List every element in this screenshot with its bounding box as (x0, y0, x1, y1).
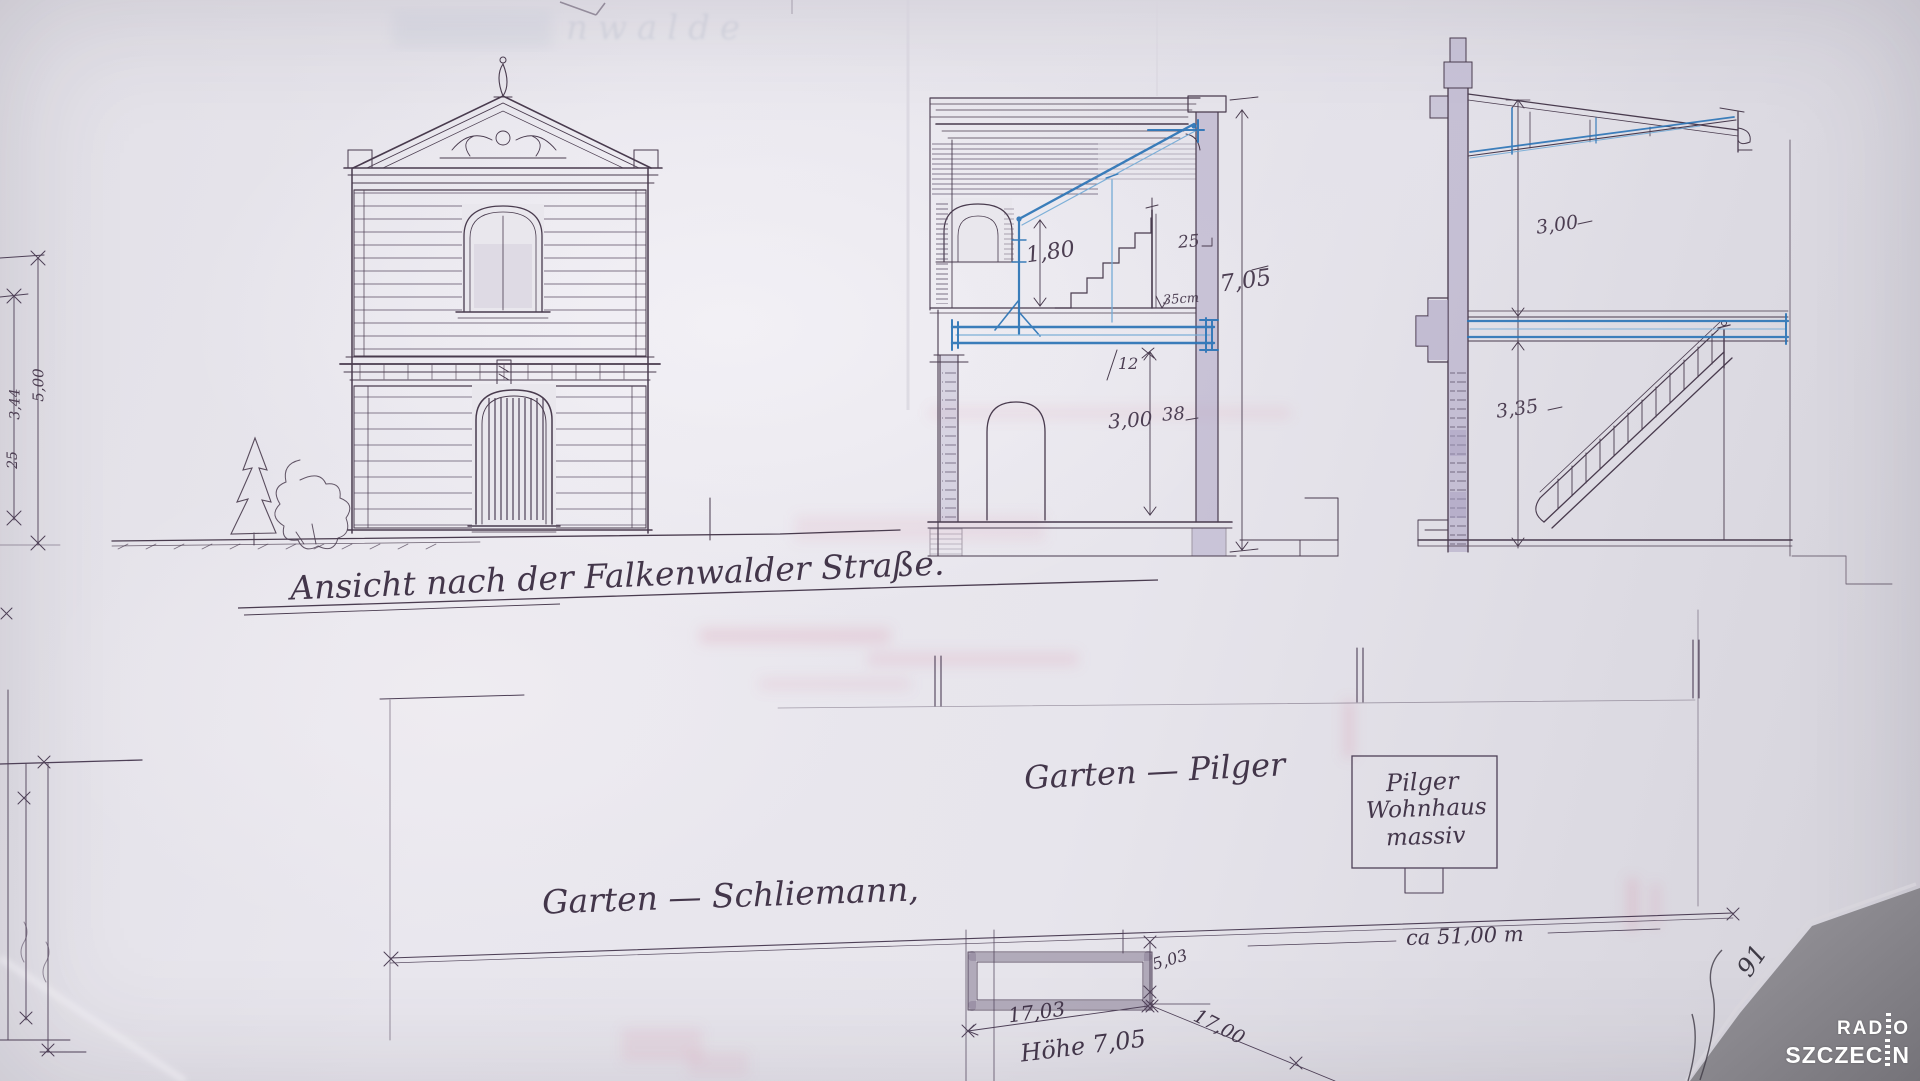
dim-left-margin-c: 25 (5, 451, 21, 469)
label-boundary-length: ca 51,00 m (1406, 922, 1524, 950)
watermark-line1-post: O (1893, 1018, 1910, 1039)
watermark-line1-pre: RAD (1837, 1018, 1884, 1039)
watermark-line1: RADO (1785, 1013, 1910, 1039)
drawing-linework (0, 0, 1920, 1081)
right-cross-section-linework (1416, 38, 1892, 584)
left-margin-dimension-lines (0, 251, 142, 1056)
paper-creases-and-stains (0, 0, 1659, 1081)
label-pilger-house-line1: Pilger (1386, 767, 1459, 798)
dashed-i-icon (1886, 1013, 1891, 1037)
radio-szczecin-watermark: RADO SZCZECN (1785, 1013, 1910, 1067)
dim-left-margin-b: 3,44 (8, 388, 24, 419)
bleed-through-text: nwalde (566, 8, 750, 48)
facade-elevation-linework (112, 57, 900, 549)
watermark-line2: SZCZECN (1785, 1039, 1910, 1067)
watermark-line2-post: N (1892, 1042, 1910, 1068)
dim-mid-slab: 35cm (1163, 291, 1200, 308)
dim-mid-beam: 12 (1118, 354, 1138, 373)
dashed-i-icon (1885, 1039, 1890, 1067)
dim-mid-wall-thickness: 38 (1161, 403, 1185, 426)
dim-mid-cornice: 25 (1177, 231, 1200, 253)
watermark-line2-pre: SZCZEC (1785, 1042, 1883, 1068)
photograph-of-architectural-drawing: Ansicht nach der Falkenwalder Straße. 1,… (0, 0, 1920, 1081)
label-pilger-house-line2: Wohnhaus (1366, 794, 1488, 824)
dim-mid-floor-height: 3,00 (1107, 406, 1153, 433)
right-section-steel-beams (1468, 108, 1788, 344)
label-pilger-house-line3: massiv (1386, 823, 1466, 852)
dim-left-margin-a: 5,00 (30, 368, 48, 401)
